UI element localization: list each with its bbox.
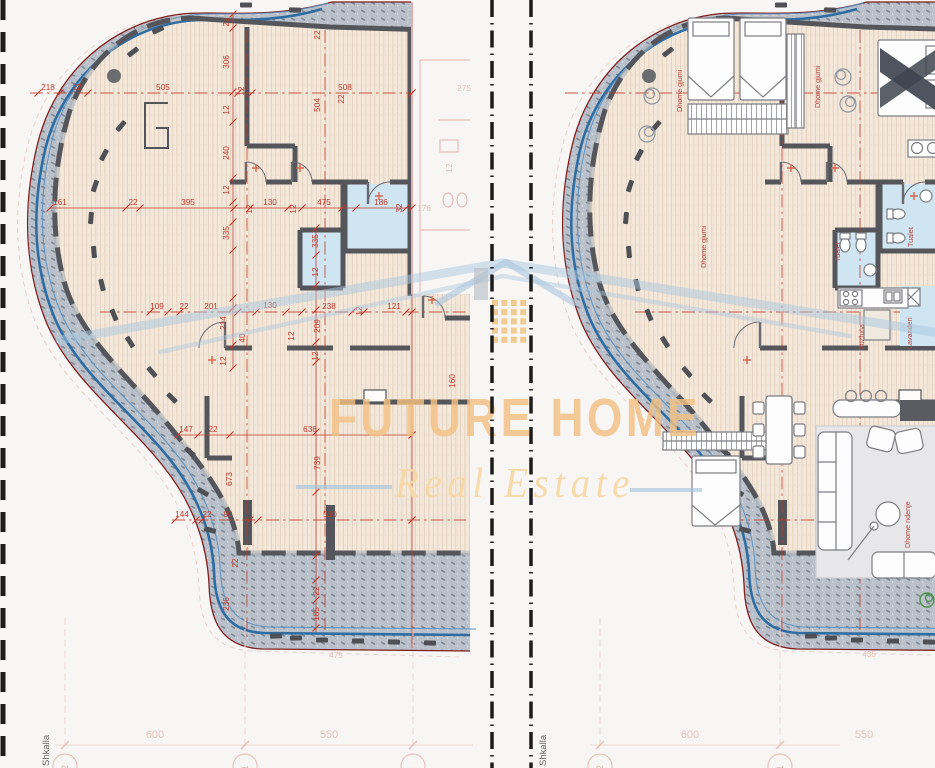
dimension-text: 673 — [225, 472, 234, 486]
room-label: Dhome ndenje — [903, 501, 912, 548]
armchair — [894, 428, 924, 455]
dimension-text: 12 — [311, 267, 320, 277]
dimension-text: 22 — [231, 558, 240, 568]
room-label: Dhome gjumi — [813, 65, 822, 108]
dimension-text: 214 — [219, 316, 228, 330]
dimension-text: 22 — [222, 17, 231, 27]
grid-bubble — [401, 754, 425, 768]
dimension-text: 144 — [175, 510, 189, 519]
room-label: Tualet — [833, 242, 842, 262]
dimension-text: 22 — [313, 30, 322, 40]
dimension-text: 32 — [395, 203, 404, 213]
brand-title: FUTURE HOME — [329, 388, 701, 448]
room-label: Tualet — [906, 227, 915, 247]
dimension-text: 218 — [41, 83, 55, 92]
dimension-text: 12 — [289, 204, 298, 214]
dimension-text: 161 — [53, 198, 67, 207]
grid-dimension: 550 — [320, 729, 338, 741]
dimension-text: 209 — [313, 319, 322, 333]
dimension-text: 240 — [222, 146, 231, 160]
dimension-text: 22 — [208, 425, 218, 434]
panel-left-dimensioned: 2182250550816122395130475186109222011302… — [18, 0, 476, 768]
dimension-text: 186 — [374, 198, 388, 207]
dimension-text: 22 — [72, 83, 82, 92]
panel-right-furnished: Dhome gjumiDhome gjumiDhome gjumiTualetT… — [538, 2, 935, 768]
grid-dimension: 550 — [855, 729, 873, 741]
room-label: Dhome gjumi — [675, 69, 684, 112]
logo-chimney — [474, 268, 488, 300]
dimension-text: 739 — [313, 456, 322, 470]
dimension-text: 147 — [179, 425, 193, 434]
dimension-text: 335 — [222, 226, 231, 240]
dimension-text: 160 — [448, 374, 457, 388]
dimension-text: 12 — [222, 105, 231, 115]
dimension-text: 130 — [263, 198, 277, 207]
dimension-text: 12 — [219, 356, 228, 366]
dimension-text: 508 — [338, 83, 352, 92]
dimension-text: 12 — [245, 204, 254, 214]
bar-counter — [833, 400, 901, 417]
dimension-text: 12 — [311, 351, 320, 361]
dimension-text: 335 — [311, 234, 320, 248]
logo-window-grid — [492, 300, 526, 343]
dimension-text: 505 — [156, 83, 170, 92]
dimension-text: 236 — [222, 597, 231, 611]
dimension-text: 395 — [181, 198, 195, 207]
coffee-table — [876, 502, 900, 526]
dimension-text: 475 — [317, 198, 331, 207]
room-label: Dhome gjumi — [699, 225, 708, 268]
dimension-text: 510 — [323, 510, 337, 519]
dimension-text: 12 — [222, 185, 231, 195]
dimension-text: 12 — [237, 86, 246, 96]
ghost-dimension-text: 475 — [329, 651, 343, 660]
ghost-dimension-text: 176 — [417, 204, 431, 213]
ghost-dimension-text: 435 — [862, 650, 876, 659]
ghost-dimension-text: 275 — [457, 84, 471, 93]
dimension-text: 638 — [303, 425, 317, 434]
dimension-text: 90 — [223, 510, 233, 519]
dimension-text: 22 — [312, 586, 321, 596]
dimension-text: 185 — [312, 607, 321, 621]
brand-subtitle: Real Estate — [394, 461, 635, 507]
dimension-text: 22 — [128, 198, 138, 207]
dimension-text: 22 — [202, 510, 212, 519]
grid-dimension: 600 — [146, 729, 164, 741]
dining-table — [766, 396, 792, 464]
dimension-text: 109 — [150, 302, 164, 311]
floorplan-sheet: 2182250550816122395130475186109222011302… — [0, 0, 935, 768]
sofa — [818, 432, 852, 550]
scale-label: Shkalla — [41, 734, 52, 766]
dimension-text: 504 — [313, 98, 322, 112]
grid-dimension: 600 — [681, 729, 699, 741]
dimension-text: 12 — [287, 331, 296, 341]
dimension-text: 306 — [222, 55, 231, 69]
dimension-text: 22 — [337, 94, 346, 104]
scale-label: Shkalla — [538, 734, 549, 766]
room-label: Kuzhina — [857, 324, 866, 350]
dimension-text: 238 — [322, 302, 336, 311]
floorplan-drawing: 2182250550816122395130475186109222011302… — [0, 0, 935, 768]
dimension-text: 22 — [179, 302, 189, 311]
ghost-dimension-text: 12 — [445, 163, 454, 173]
